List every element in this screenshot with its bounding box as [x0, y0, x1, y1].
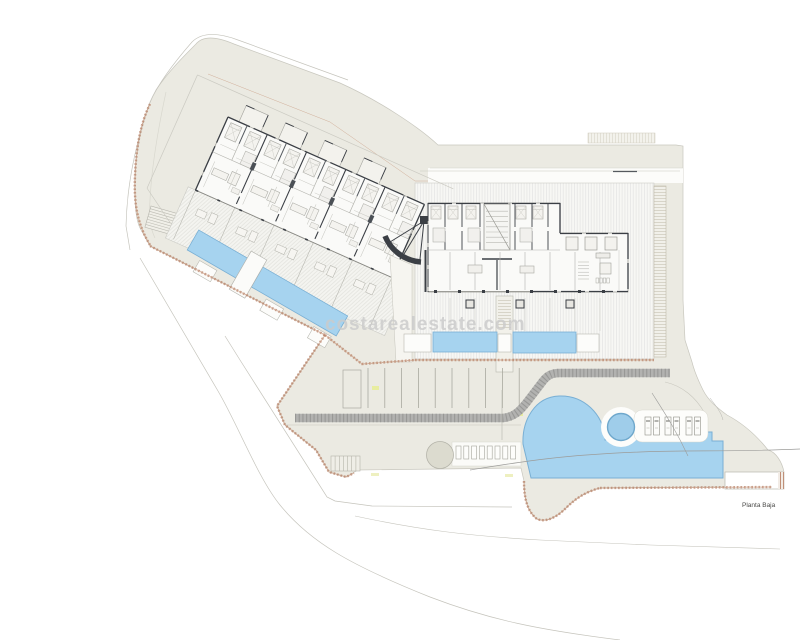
svg-text:Planta Baja: Planta Baja: [742, 502, 776, 509]
svg-text:costarealestate.com: costarealestate.com: [325, 314, 525, 335]
